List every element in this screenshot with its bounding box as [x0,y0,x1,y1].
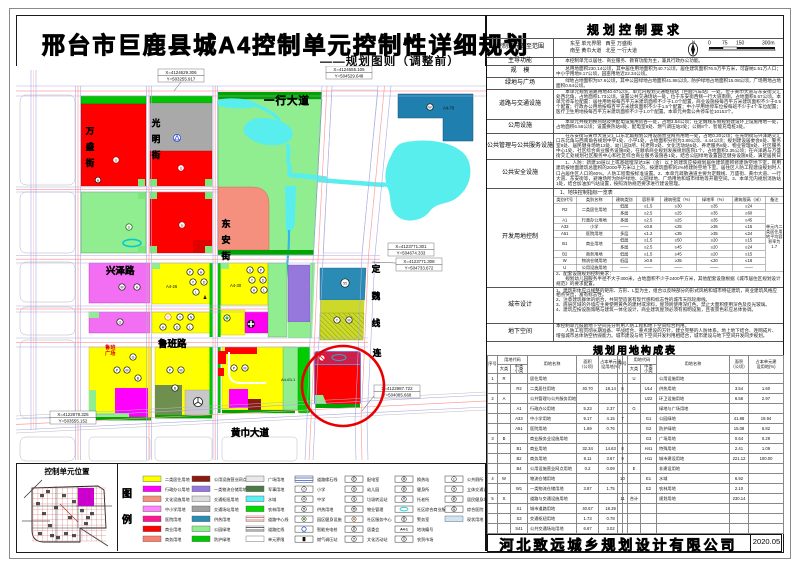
svg-text:U: U [128,225,131,229]
svg-text:单元界限: 单元界限 [268,536,284,542]
svg-text:U: U [115,158,118,162]
svg-text:55: 55 [343,281,347,285]
svg-text:♟: ♟ [203,295,207,301]
svg-text:健: 健 [403,487,406,491]
svg-text:街: 街 [220,250,230,261]
svg-text:M: M [180,368,183,372]
svg-text:黄巾大道: 黄巾大道 [231,427,270,439]
svg-text:75: 75 [722,41,728,47]
svg-text:魏: 魏 [371,291,381,301]
svg-text:健身所: 健身所 [417,486,429,492]
svg-text:东: 东 [221,218,230,229]
svg-text:D: D [176,325,179,329]
svg-text:H: H [200,270,203,274]
svg-text:垃: 垃 [353,497,356,501]
svg-text:D: D [203,280,206,284]
svg-text:农: 农 [403,537,406,541]
svg-text:H: H [253,288,256,292]
svg-text:D: D [262,278,265,282]
svg-text:街: 街 [85,158,95,168]
svg-text:A4-63-1: A4-63-1 [281,377,296,382]
svg-text:鲁班: 鲁班 [105,343,116,351]
svg-text:道路缘石线: 道路缘石线 [317,476,337,482]
svg-text:防护绿地: 防护绿地 [214,536,230,542]
svg-text:万: 万 [85,126,95,136]
svg-text:Y=504085.668: Y=504085.668 [383,393,412,398]
svg-text:中: 中 [303,497,306,501]
svg-text:物: 物 [353,507,356,511]
svg-text:热: 热 [303,507,306,511]
svg-text:150: 150 [736,41,745,47]
svg-text:线: 线 [372,318,381,328]
svg-text:居民健身场地: 居民健身场地 [467,496,486,502]
svg-text:燃气调压站: 燃气调压站 [317,536,337,542]
svg-text:明: 明 [152,134,161,144]
svg-text:现状用地: 现状用地 [467,516,483,522]
svg-text:智能充电桩: 智能充电桩 [317,526,337,532]
svg-text:医院用地: 医院用地 [165,516,181,522]
svg-text:行政办公用地: 行政办公用地 [165,486,190,492]
svg-text:A4-1: A4-1 [400,527,408,531]
svg-text:水域: 水域 [268,496,276,502]
svg-text:广场: 广场 [105,349,115,357]
svg-text:公: 公 [453,477,456,481]
svg-text:物业管理: 物业管理 [367,506,383,512]
svg-text:G: G [119,320,122,324]
svg-text:Y=503255.917: Y=503255.917 [167,77,196,82]
svg-text:X=4124655.105: X=4124655.105 [333,67,365,72]
svg-text:X=4123771.301: X=4123771.301 [395,244,427,249]
svg-text:N: N [190,315,193,319]
svg-text:盛: 盛 [86,142,95,152]
svg-text:W: W [428,105,432,109]
svg-text:0: 0 [708,41,711,47]
svg-text:X=4123771.308: X=4123771.308 [403,259,435,264]
svg-text:幼: 幼 [353,487,356,491]
svg-text:社区服务中心: 社区服务中心 [367,516,392,522]
svg-text:兴泽路: 兴泽路 [106,265,135,277]
svg-text:换热站: 换热站 [417,476,429,482]
svg-text:托: 托 [403,497,406,501]
svg-text:A4-70: A4-70 [443,106,455,111]
svg-text:X=4124629.306: X=4124629.306 [165,70,197,75]
svg-text:小学: 小学 [317,486,325,492]
svg-text:供热用地: 供热用地 [214,516,230,522]
svg-text:一类物流仓储用地: 一类物流仓储用地 [214,486,247,492]
svg-text:Y=504529.648: Y=504529.648 [335,74,364,79]
svg-text:地块编号: 地块编号 [417,526,433,532]
svg-text:商业用地: 商业用地 [165,526,181,532]
svg-text:鲁班路: 鲁班路 [158,338,187,350]
svg-text:供热用地: 供热用地 [317,506,333,512]
svg-text:光: 光 [151,118,161,128]
svg-text:军事用地: 军事用地 [268,486,284,492]
svg-text:农林用地: 农林用地 [268,506,284,512]
svg-text:文化设施用地: 文化设施用地 [165,496,190,502]
svg-text:居委会: 居委会 [367,526,379,532]
svg-text:定: 定 [371,264,381,274]
svg-text:H: H [162,325,165,329]
svg-text:安: 安 [221,234,230,245]
svg-text:L: L [195,290,197,294]
svg-text:A4-30: A4-30 [230,283,242,288]
svg-text:园区健身设施: 园区健身设施 [317,516,342,522]
svg-text:文化活动站: 文化活动站 [367,536,387,542]
svg-text:公园绿地: 公园绿地 [214,526,230,532]
svg-text:中学: 中学 [317,496,325,502]
svg-text:道路红线: 道路红线 [268,526,284,532]
svg-text:L: L [189,325,191,329]
svg-text:广场用地: 广场用地 [268,476,284,482]
svg-text:X=4122878.325: X=4122878.325 [57,412,89,417]
svg-text:立体交通设施: 立体交通设施 [467,486,486,492]
svg-text:健: 健 [453,497,456,501]
svg-text:U: U [181,223,184,227]
svg-text:农贸市场: 农贸市场 [417,536,433,542]
svg-text:A4-26: A4-26 [166,284,178,289]
svg-text:Y=504733.672: Y=504733.672 [405,266,434,271]
svg-text:L: L [263,288,265,292]
svg-text:G: G [132,355,135,359]
svg-text:配: 配 [353,477,356,481]
svg-text:Y=504674.333: Y=504674.333 [397,251,426,256]
svg-text:M: M [244,366,247,370]
svg-text:综合医院: 综合医院 [467,506,483,512]
svg-text:连: 连 [373,348,382,358]
svg-text:M: M [126,368,129,372]
svg-text:中小学用地: 中小学用地 [165,506,185,512]
svg-text:道路中心线: 道路中心线 [268,516,288,522]
svg-text:H: H [136,285,139,289]
svg-text:M: M [348,318,351,322]
svg-text:街: 街 [151,150,161,160]
svg-text:交通场站用地: 交通场站用地 [214,506,239,512]
svg-text:一行大道: 一行大道 [264,94,310,107]
svg-text:警: 警 [403,517,406,521]
svg-text:交通枢纽用地: 交通枢纽用地 [214,496,239,502]
svg-text:医: 医 [453,507,456,511]
svg-text:小: 小 [303,487,306,491]
svg-text:垃圾转运站: 垃圾转运站 [367,496,387,502]
svg-text:二类居住用地: 二类居住用地 [165,476,190,482]
svg-text:公共厕所: 公共厕所 [467,476,483,482]
svg-text:警务室: 警务室 [417,516,429,522]
svg-text:换: 换 [403,477,406,481]
svg-text:托老所: 托老所 [417,496,429,502]
svg-text:幼儿园: 幼儿园 [367,486,379,492]
svg-text:文: 文 [353,537,356,541]
svg-text:M: M [121,285,124,289]
svg-text:交: 交 [453,487,456,491]
svg-text:配电室: 配电室 [367,476,379,482]
svg-text:居: 居 [353,527,356,531]
svg-text:Y=503555.152: Y=503555.152 [59,419,88,424]
svg-text:商务用地: 商务用地 [165,536,181,542]
svg-text:X=4122987.722: X=4122987.722 [381,386,413,391]
svg-text:U: U [180,166,183,170]
svg-text:300m: 300m [762,41,775,47]
